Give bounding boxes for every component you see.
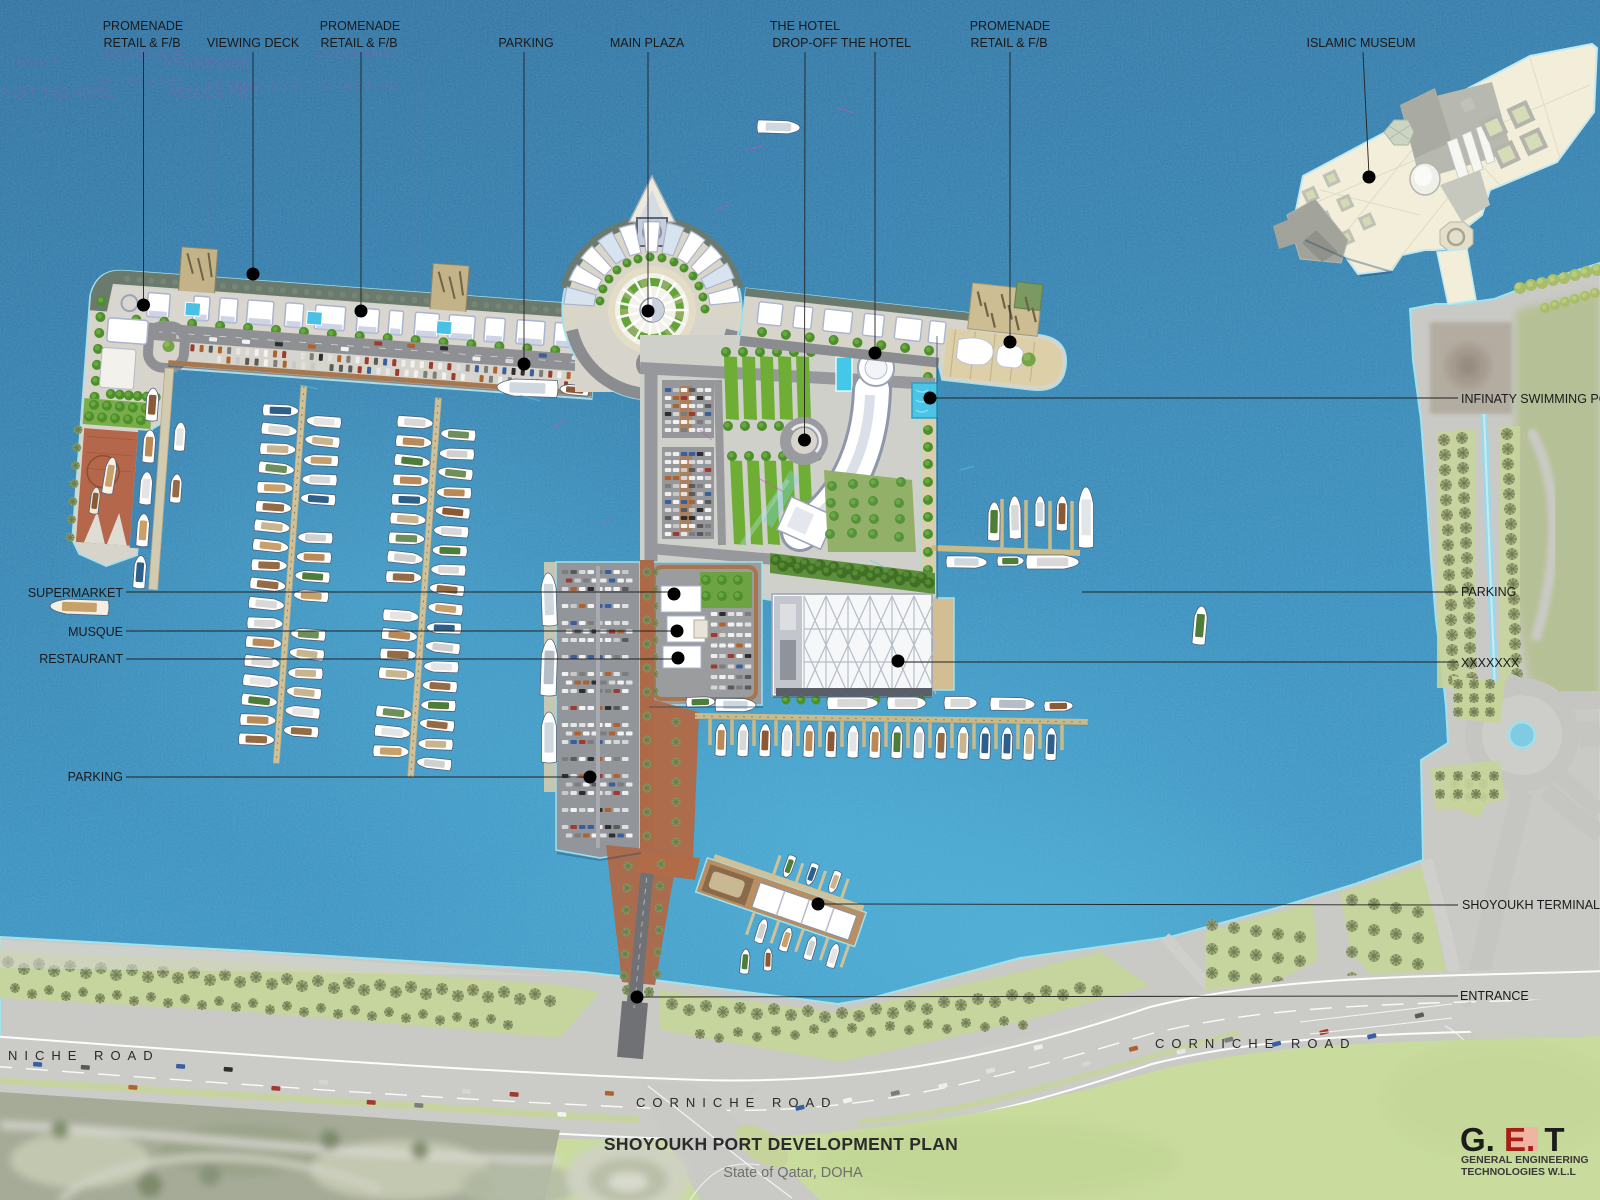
svg-text:RETAIL & F/B: RETAIL & F/B [103, 36, 180, 50]
svg-text:NICHE ROAD: NICHE ROAD [8, 1048, 160, 1063]
svg-text:MUSQUE: MUSQUE [68, 625, 123, 639]
svg-text:CORNICHE ROAD: CORNICHE ROAD [636, 1095, 838, 1110]
svg-text:PARKING: PARKING [498, 36, 553, 50]
svg-text:GENERAL ENGINEERING: GENERAL ENGINEERING [1461, 1154, 1589, 1166]
svg-text:HOTEL: HOTEL [17, 54, 60, 69]
svg-text:PROMENADE: PROMENADE [165, 55, 249, 70]
svg-text:VIEWING DECK: VIEWING DECK [206, 78, 302, 93]
svg-text:PROMENADE: PROMENADE [970, 19, 1051, 33]
svg-text:PROMENADE: PROMENADE [103, 19, 184, 33]
svg-text:PROMENADE: PROMENADE [320, 19, 401, 33]
svg-text:PARKING: PARKING [68, 770, 123, 784]
svg-text:INFINATY SWIMMING POOL: INFINATY SWIMMING POOL [1461, 392, 1600, 406]
svg-text:RESTAURANT: RESTAURANT [39, 652, 123, 666]
svg-text:RETAIL & F/B: RETAIL & F/B [970, 36, 1047, 50]
svg-text:THE HOTEL: THE HOTEL [841, 36, 911, 50]
svg-text:XXXXXXX: XXXXXXX [1461, 656, 1520, 670]
svg-text:SHOYOUKH PORT DEVELOPMENT PLAN: SHOYOUKH PORT DEVELOPMENT PLAN [604, 1134, 958, 1154]
svg-text:PARKING: PARKING [1461, 585, 1516, 599]
svg-text:DROP-OFF: DROP-OFF [772, 36, 838, 50]
svg-text:State of Qatar, DOHA: State of Qatar, DOHA [723, 1165, 863, 1181]
svg-text:VIEWING DECK: VIEWING DECK [207, 36, 300, 50]
svg-text:ENTRANCE: ENTRANCE [1460, 989, 1529, 1003]
svg-text:P-OFF THE HOTEL: P-OFF THE HOTEL [0, 85, 115, 100]
svg-text:ISLAMIC MUSEUM: ISLAMIC MUSEUM [1306, 36, 1415, 50]
svg-text:MAIN PLAZA: MAIN PLAZA [610, 36, 685, 50]
svg-text:RETAIL & F/B: RETAIL & F/B [320, 36, 397, 50]
svg-text:RETAIL & F/B: RETAIL & F/B [318, 78, 398, 93]
svg-text:CORNICHE ROAD: CORNICHE ROAD [1155, 1036, 1357, 1051]
svg-text:SUPERMARKET: SUPERMARKET [28, 586, 124, 600]
svg-text:THE HOTEL: THE HOTEL [770, 19, 840, 33]
svg-text:G. E. T: G. E. T [1460, 1121, 1565, 1158]
svg-text:TECHNOLOGIES W.L.L: TECHNOLOGIES W.L.L [1461, 1166, 1577, 1178]
svg-text:SHOYOUKH TERMINAL: SHOYOUKH TERMINAL [1462, 898, 1600, 912]
